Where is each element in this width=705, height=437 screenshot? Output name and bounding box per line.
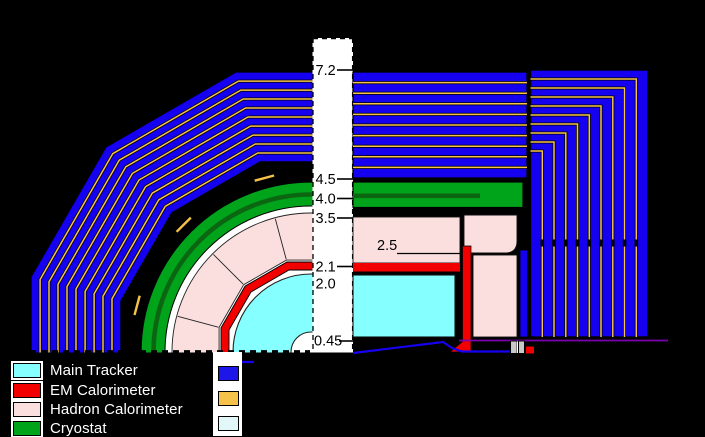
hcal-barrel-longitudinal [353,217,460,263]
legend-item-cryostat: Cryostat [13,420,107,437]
coil-longitudinal [353,194,480,199]
legend-label-em-calorimeter: EM Calorimeter [50,382,156,399]
scale-label-3-5: 3.5 [316,211,336,227]
endcap-segment-dashes [541,240,639,247]
scale-label-4-5: 4.5 [316,172,336,188]
legend-swatch-blue [218,366,239,381]
legend-swatch-yellow [218,391,239,406]
beam-pipe-blue [353,342,510,353]
scale-label-0-45: 0.45 [314,334,342,350]
legend-item-em-calorimeter: EM Calorimeter [13,382,156,399]
qd0-magnet-right [519,341,525,354]
scale-label-2-1: 2.1 [316,260,336,276]
scale-label-7-2: 7.2 [316,63,336,79]
yoke-barrel-longitudinal [353,72,527,178]
radial-scale-bar: 7.2 4.5 4.0 3.5 2.1 2.0 0.45 [313,38,354,353]
hcal-endcap-lower [473,255,517,337]
hcal-endcap-radius-label: 2.5 [377,238,397,254]
tracker-longitudinal [353,275,455,337]
legend-swatch-hadron-calorimeter [13,402,41,417]
forward-calorimeter-red [526,347,534,354]
scale-label-4-0: 4.0 [316,192,336,208]
legend-item-main-tracker: Main Tracker [13,362,138,379]
legend-item-hadron-calorimeter: Hadron Calorimeter [13,401,183,418]
legend-label-hadron-calorimeter: Hadron Calorimeter [50,401,183,418]
legend-label-main-tracker: Main Tracker [50,362,138,379]
scale-label-2-0: 2.0 [316,277,336,293]
qd0-magnet-left [511,341,517,354]
legend-swatch-main-tracker [13,363,41,378]
longitudinal-view: 2.5 [353,72,528,352]
ecal-barrel-longitudinal [353,263,460,272]
legend-swatch-pale-cyan [218,416,239,431]
endcap-yoke [531,70,649,337]
legend-swatch-em-calorimeter [13,383,41,398]
hcal-endcap-upper [464,215,517,253]
yoke-endcap-inner-sliver [520,250,528,337]
legend-label-cryostat: Cryostat [50,420,107,437]
legend-swatch-cryostat [13,421,41,436]
detector-diagram: 7.2 4.5 4.0 3.5 2.1 2.0 0.45 [0,0,705,436]
